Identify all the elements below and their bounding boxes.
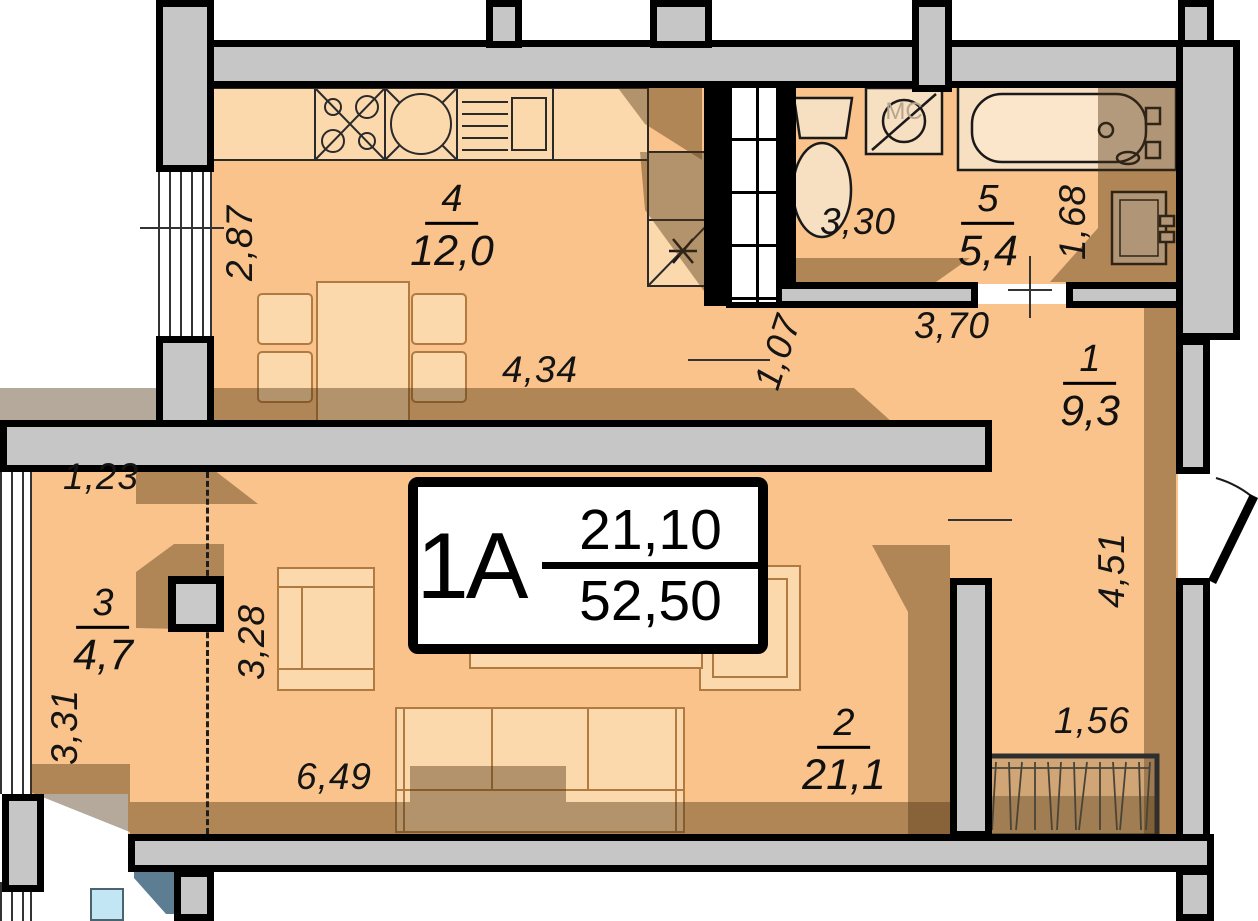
right-wall-pier	[1176, 868, 1214, 921]
living-top-wall	[0, 420, 992, 472]
fraction-divider	[542, 562, 760, 569]
dim-kitchen-length: 4,34	[502, 349, 578, 391]
room-label-living: 2 21,1	[802, 704, 886, 800]
living-area-value: 21,10	[579, 501, 722, 559]
room-area: 21,1	[802, 751, 886, 800]
pier-top-left	[156, 0, 214, 172]
room-area: 4,7	[73, 631, 133, 680]
room-area: 5,4	[958, 227, 1018, 276]
closet-hatch	[985, 756, 1157, 836]
room-area: 12,0	[410, 227, 494, 276]
kitchen-counter	[204, 88, 648, 160]
room-label-hall: 1 9,3	[1060, 340, 1120, 436]
armchair	[278, 568, 374, 690]
room-number: 3	[76, 584, 129, 629]
area-fraction: 21,10 52,50	[542, 501, 760, 630]
dim-bathroom-length: 3,30	[820, 201, 896, 243]
dim-living-length: 6,49	[296, 756, 372, 798]
loggia-divider	[206, 472, 209, 834]
room-label-bathroom: 5 5,4	[958, 180, 1018, 276]
bottom-left-pier	[174, 870, 214, 921]
entrance-door	[1212, 478, 1256, 582]
right-wall-low	[1176, 578, 1210, 870]
tv-stand	[470, 652, 702, 668]
dim-living-height: 3,28	[231, 604, 273, 680]
room-area: 9,3	[1060, 387, 1120, 436]
room-label-loggia: 3 4,7	[73, 584, 133, 680]
room-number: 4	[425, 180, 478, 225]
room-label-kitchen: 4 12,0	[410, 180, 494, 276]
room-number: 1	[1063, 340, 1116, 385]
right-wall-top	[1176, 40, 1240, 340]
total-area-value: 52,50	[579, 572, 722, 630]
room-number: 5	[961, 180, 1014, 225]
pier-top-c	[912, 0, 952, 92]
dim-loggia-height: 3,31	[44, 689, 86, 765]
right-wall-mid	[1176, 338, 1210, 474]
bottom-wall	[128, 834, 1214, 872]
chair	[412, 294, 466, 344]
floor-plan: МС 4 12,0 5 5,4 1 9,3 2 21,1 3 4,7 2,87 …	[0, 0, 1258, 921]
apartment-number: 1А	[417, 519, 526, 613]
dim-closet-width: 1,56	[1054, 700, 1130, 742]
kitchen-sink-icon	[385, 88, 457, 160]
neighbour-glass	[90, 888, 124, 921]
dim-bathroom-width: 1,68	[1052, 184, 1094, 260]
pier-top-b	[650, 0, 712, 48]
dim-loggia-top: 1,23	[63, 456, 139, 498]
living-hall-wall	[950, 578, 992, 838]
ventilation-shaft	[726, 82, 782, 308]
chair	[258, 294, 312, 344]
dim-hall-height: 4,51	[1091, 532, 1133, 608]
loggia-corner-wall	[2, 794, 44, 892]
apartment-card: 1А 21,10 52,50	[408, 477, 768, 654]
bathroom-left-wall	[780, 82, 796, 306]
dim-hall-top-width: 3,70	[914, 305, 990, 347]
room-number: 2	[817, 704, 870, 749]
column	[168, 576, 224, 632]
pier-top-a	[486, 0, 522, 48]
dim-kitchen-width: 2,87	[219, 205, 261, 281]
washing-machine-label: МС	[872, 98, 936, 126]
